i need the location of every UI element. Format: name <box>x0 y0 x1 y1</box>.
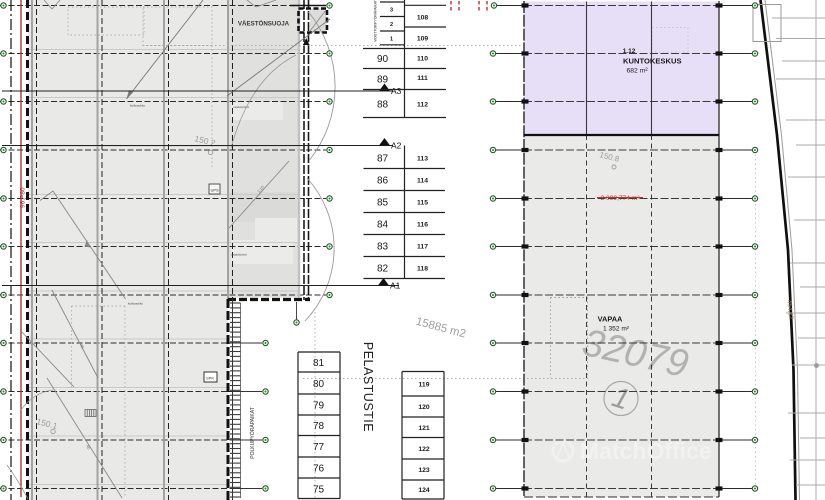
svg-text:MOOTTORIPYÖRÄPAIKAT: MOOTTORIPYÖRÄPAIKAT <box>374 0 378 42</box>
svg-text:84: 84 <box>377 220 389 231</box>
svg-text:117: 117 <box>417 244 428 251</box>
svg-text:VÄESTÖNSUOJA: VÄESTÖNSUOJA <box>238 21 290 28</box>
svg-text:118: 118 <box>417 266 428 273</box>
svg-text:80: 80 <box>313 379 325 390</box>
svg-text:120: 120 <box>418 404 430 411</box>
svg-text:121: 121 <box>418 425 430 432</box>
svg-text:1: 1 <box>390 37 393 43</box>
svg-text:77: 77 <box>313 442 325 453</box>
svg-text:VAPAA: VAPAA <box>598 315 623 324</box>
svg-text:85: 85 <box>377 198 389 209</box>
svg-text:76: 76 <box>313 464 325 475</box>
svg-text:89: 89 <box>377 75 389 86</box>
svg-text:kulkuaukko: kulkuaukko <box>130 104 145 108</box>
svg-text:SPK: SPK <box>206 376 214 381</box>
svg-text:83: 83 <box>377 242 389 253</box>
svg-text:110: 110 <box>417 56 428 63</box>
svg-text:PELASTUSTIE: PELASTUSTIE <box>361 342 375 432</box>
svg-text:90: 90 <box>377 54 389 65</box>
svg-text:86: 86 <box>377 176 389 187</box>
svg-text:111: 111 <box>417 75 428 82</box>
svg-text:A1: A1 <box>390 281 401 291</box>
svg-text:A2: A2 <box>391 141 402 151</box>
svg-text:vajakäytävä: vajakäytävä <box>231 253 247 257</box>
svg-text:1.12: 1.12 <box>623 48 636 55</box>
svg-text:3: 3 <box>390 8 393 14</box>
svg-text:1 352 m²: 1 352 m² <box>603 326 630 333</box>
svg-text:2 099,774 m²: 2 099,774 m² <box>601 195 641 202</box>
svg-text:KUNTOKESKUS: KUNTOKESKUS <box>623 57 682 66</box>
svg-text:88: 88 <box>377 100 389 111</box>
svg-text:87: 87 <box>377 154 389 165</box>
svg-text:113: 113 <box>417 156 428 163</box>
svg-text:108: 108 <box>417 15 429 22</box>
svg-text:75: 75 <box>313 485 325 496</box>
svg-text:MatchOffice: MatchOffice <box>580 438 712 464</box>
svg-text:115: 115 <box>417 200 428 207</box>
svg-text:kulkuaukko: kulkuaukko <box>128 302 143 306</box>
svg-text:109: 109 <box>417 36 429 43</box>
svg-text:81: 81 <box>313 358 325 369</box>
svg-text:78: 78 <box>313 421 325 432</box>
svg-text:116: 116 <box>417 222 428 229</box>
svg-text:96,P80: 96,P80 <box>20 187 27 208</box>
svg-text:682 m²: 682 m² <box>627 68 649 75</box>
svg-text:123: 123 <box>418 467 430 474</box>
svg-text:UPS: UPS <box>211 188 220 193</box>
svg-text:119: 119 <box>419 382 430 389</box>
svg-text:124: 124 <box>418 487 430 494</box>
svg-text:122: 122 <box>418 446 430 453</box>
svg-text:82: 82 <box>377 264 389 275</box>
svg-text:79: 79 <box>313 401 325 412</box>
svg-text:112: 112 <box>417 102 428 109</box>
svg-text:114: 114 <box>417 178 428 185</box>
svg-text:2: 2 <box>390 22 393 28</box>
svg-text:POLKUPYÖRÄPAIKAT: POLKUPYÖRÄPAIKAT <box>249 407 256 459</box>
svg-text:A3: A3 <box>391 86 402 96</box>
